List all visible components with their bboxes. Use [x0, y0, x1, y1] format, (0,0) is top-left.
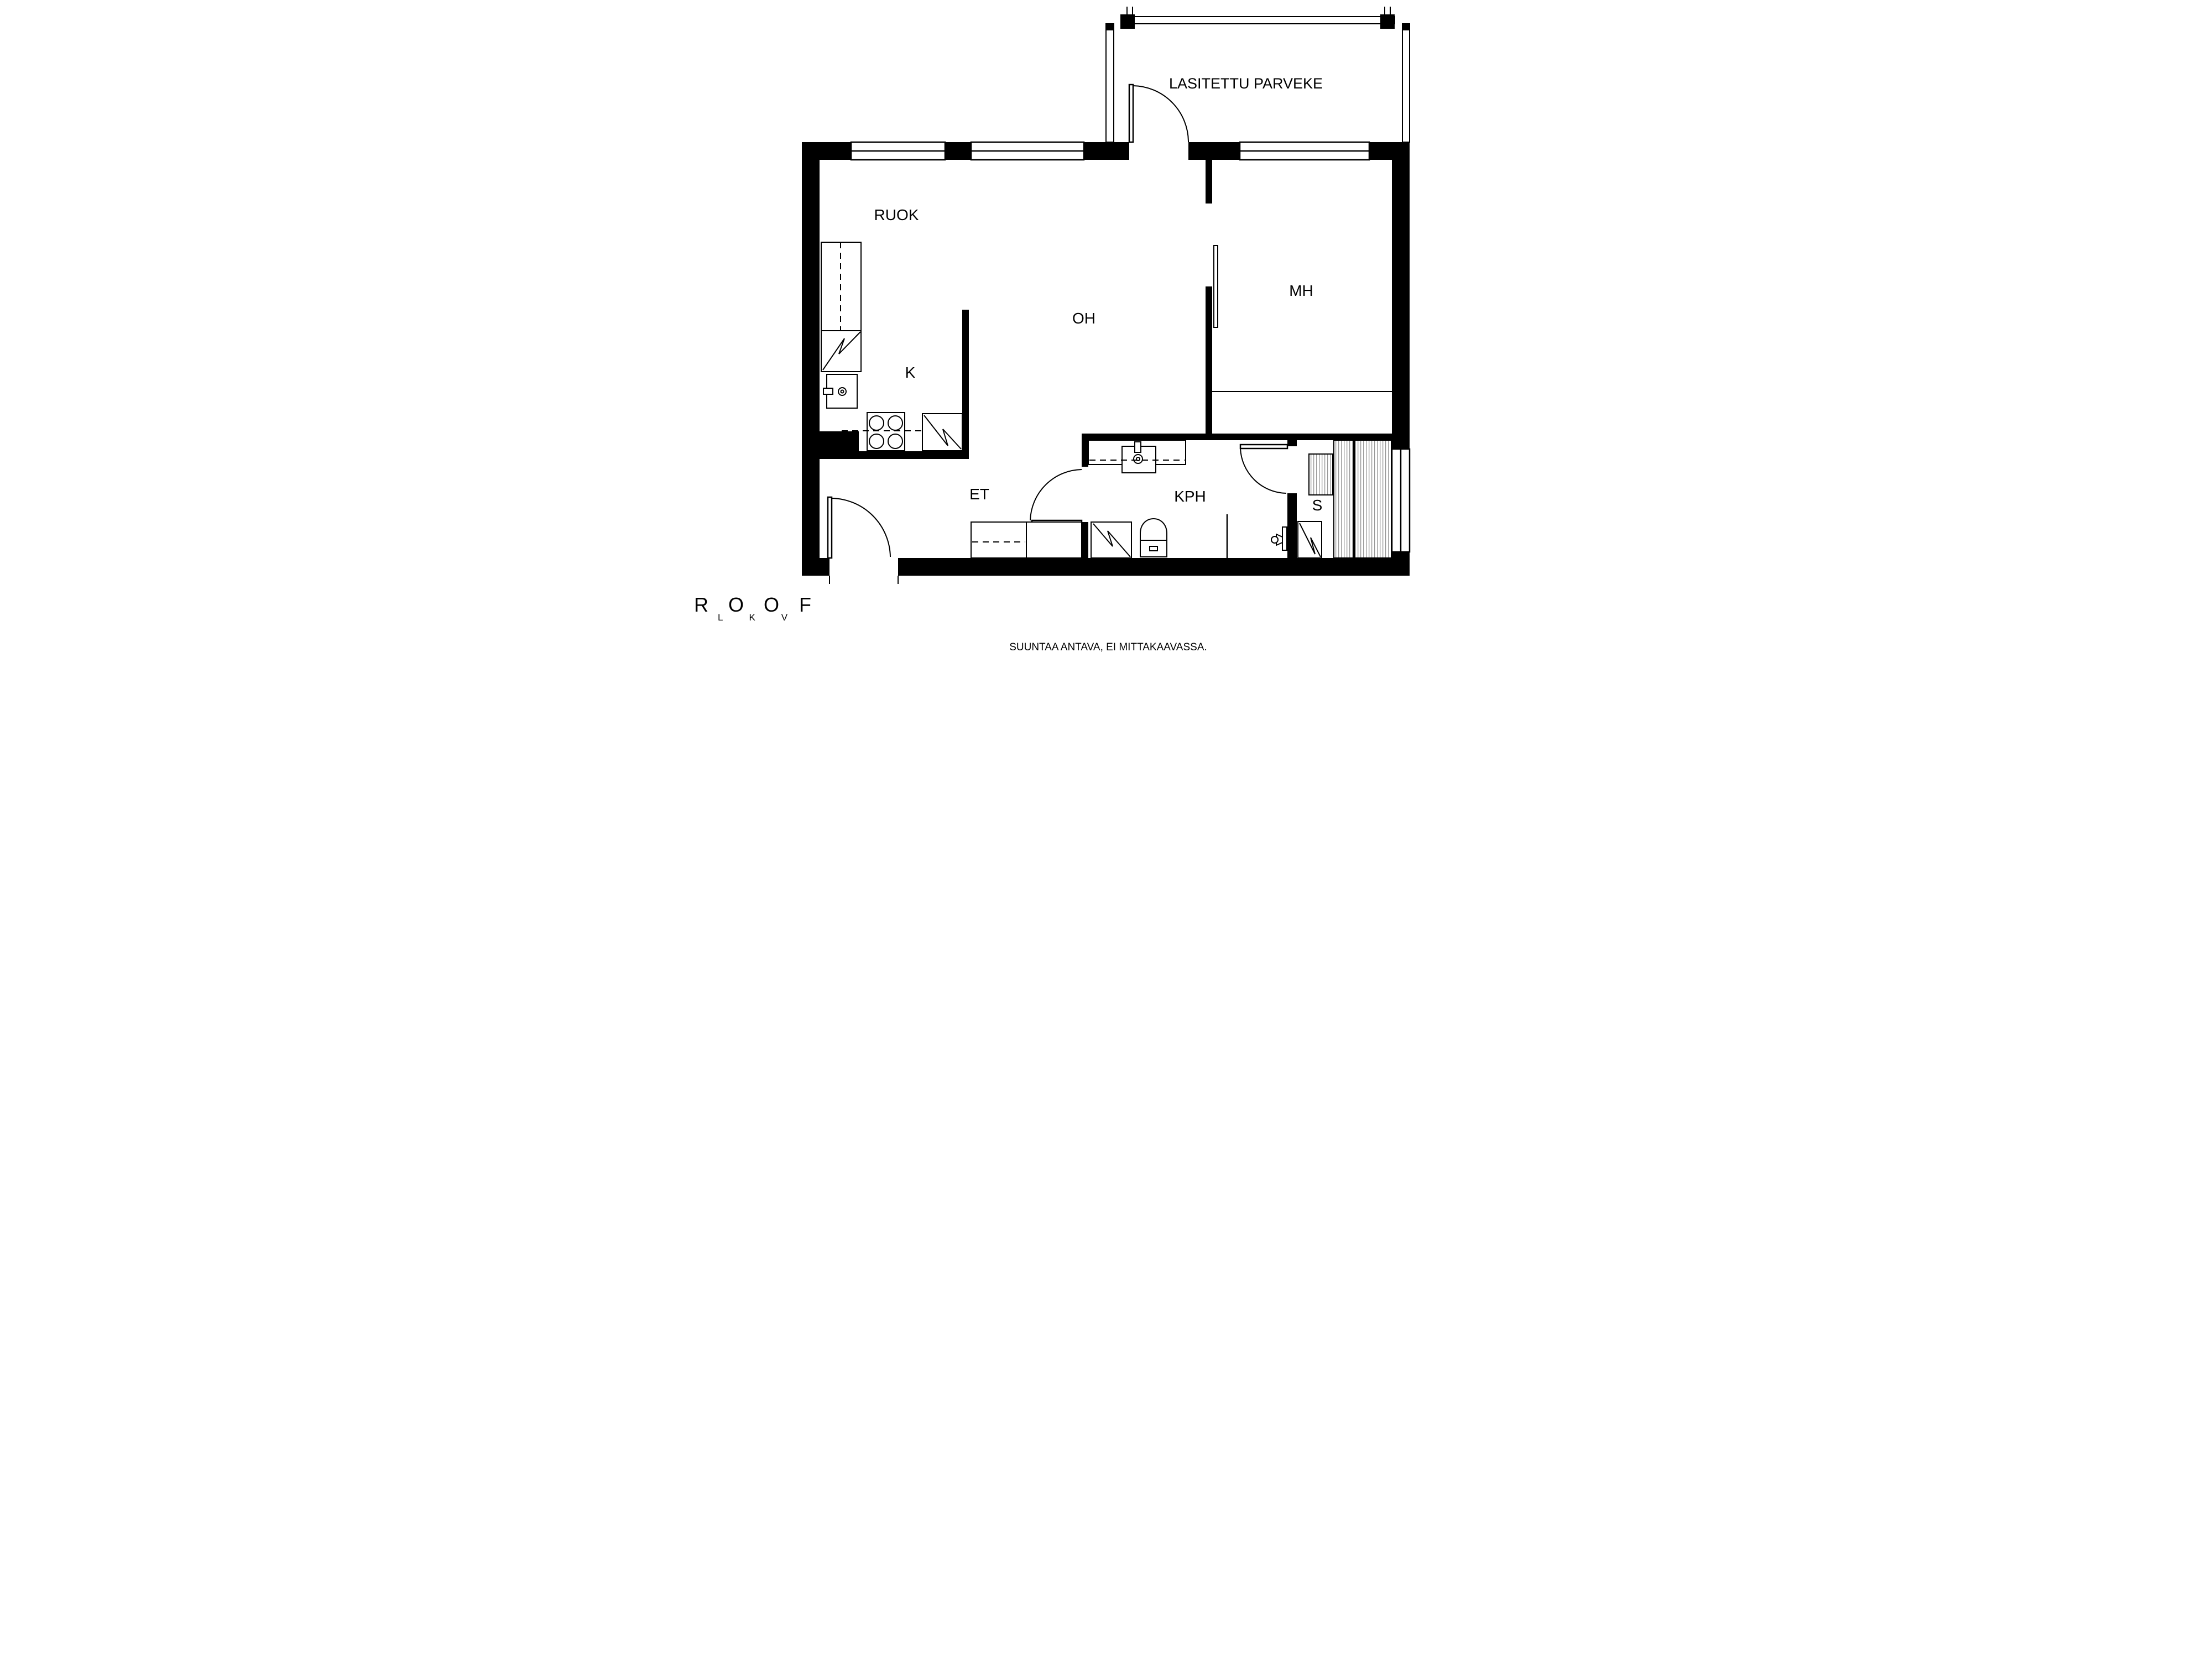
wall-living-bedroom-upper: [1206, 160, 1212, 204]
bathroom-faucet-base: [1135, 442, 1141, 452]
toilet: [1140, 519, 1167, 557]
shower-drain-zigzag: [1093, 524, 1130, 557]
wall-bottom-main: [898, 558, 1410, 576]
footer: ROOF LKV SUUNTAA ANTAVA, EI MITTAKAAVASS…: [694, 593, 1207, 653]
wall-hall-bathroom-lower: [1082, 522, 1088, 558]
wall-top-segment-3: [1084, 142, 1129, 160]
floor-plan-page: LASITETTU PARVEKE RUOK K OH MH ET KPH S …: [664, 0, 1548, 664]
label-living-room: OH: [1072, 310, 1095, 327]
label-bedroom: MH: [1289, 282, 1313, 299]
kitchen-fixtures: [821, 242, 962, 451]
balcony-post-right: [1380, 14, 1395, 29]
disclaimer-text: SUUNTAA ANTAVA, EI MITTAKAAVASSA.: [1009, 641, 1207, 653]
shower-head-knob: [1271, 536, 1278, 543]
kitchen-faucet-base: [823, 388, 833, 394]
hall-cabinet-left: [971, 522, 1026, 558]
wall-hall-bathroom-upper: [1082, 434, 1088, 467]
bathroom-door-swing-arc: [1030, 469, 1082, 520]
label-kitchen: K: [905, 364, 916, 381]
hall-fixtures: [971, 522, 1082, 558]
toilet-flush-button: [1150, 546, 1157, 551]
floor-plan-svg: LASITETTU PARVEKE RUOK K OH MH ET KPH S …: [664, 0, 1548, 664]
label-bathroom: KPH: [1174, 488, 1206, 505]
sauna-door-swing-arc: [1240, 448, 1286, 493]
balcony-glazed-railing: [1124, 17, 1395, 24]
balcony-glazed-wall-right: [1402, 24, 1410, 142]
wall-kitchen-bottom: [859, 451, 969, 459]
wall-top-segment-4: [1188, 142, 1240, 160]
sauna-bench-upper: [1355, 440, 1391, 558]
sauna-bench-small: [1309, 454, 1333, 495]
balcony: [1106, 7, 1410, 142]
wall-bathroom-sauna-lower: [1287, 493, 1297, 558]
balcony-glazed-wall-left: [1106, 24, 1114, 142]
window-dining-2: [971, 142, 1084, 160]
sliding-door-panel: [1214, 246, 1218, 327]
label-balcony: LASITETTU PARVEKE: [1169, 75, 1323, 92]
label-sauna: S: [1312, 497, 1323, 514]
wall-living-bedroom-lower: [1206, 286, 1212, 440]
shower-head-bracket: [1282, 527, 1287, 550]
front-door-swing-arc: [832, 498, 890, 557]
balcony-post-left: [1120, 14, 1135, 29]
label-entrance-hall: ET: [969, 486, 989, 503]
shower-head: [1271, 527, 1287, 550]
wall-kitchen-living: [962, 310, 969, 459]
wall-bathroom-sauna-upper: [1287, 440, 1297, 446]
shower: [1091, 522, 1131, 558]
wall-left: [802, 142, 820, 576]
brand-logo-letters: LKV: [718, 612, 813, 623]
kitchen-dishwasher: [922, 414, 962, 451]
balcony-wall-post-left: [1106, 24, 1114, 30]
balcony-door: [1129, 85, 1188, 142]
balcony-wall-post-right: [1402, 24, 1410, 30]
wall-bathroom-top: [1082, 434, 1392, 440]
sauna-door: [1240, 445, 1287, 493]
wall-top-segment-2: [945, 142, 971, 160]
balcony-door-swing-arc: [1133, 86, 1188, 142]
window-sauna: [1392, 449, 1410, 552]
front-door: [828, 497, 898, 584]
sauna-door-leaf: [1240, 445, 1287, 448]
wall-kitchen-stub: [820, 431, 859, 459]
kitchen-stove: [867, 413, 905, 451]
wall-bottom-left: [802, 558, 830, 576]
bathroom-door: [1030, 469, 1082, 524]
wall-right-upper: [1392, 142, 1410, 449]
bedroom-sliding-door: [1214, 246, 1218, 327]
label-dining: RUOK: [874, 206, 919, 223]
window-dining-1: [851, 142, 945, 160]
hall-cabinet-right: [1026, 522, 1082, 558]
balcony-door-leaf: [1129, 85, 1133, 142]
front-door-leaf: [828, 497, 832, 558]
window-bedroom: [1240, 142, 1369, 160]
sauna-bench-lower: [1334, 440, 1354, 558]
